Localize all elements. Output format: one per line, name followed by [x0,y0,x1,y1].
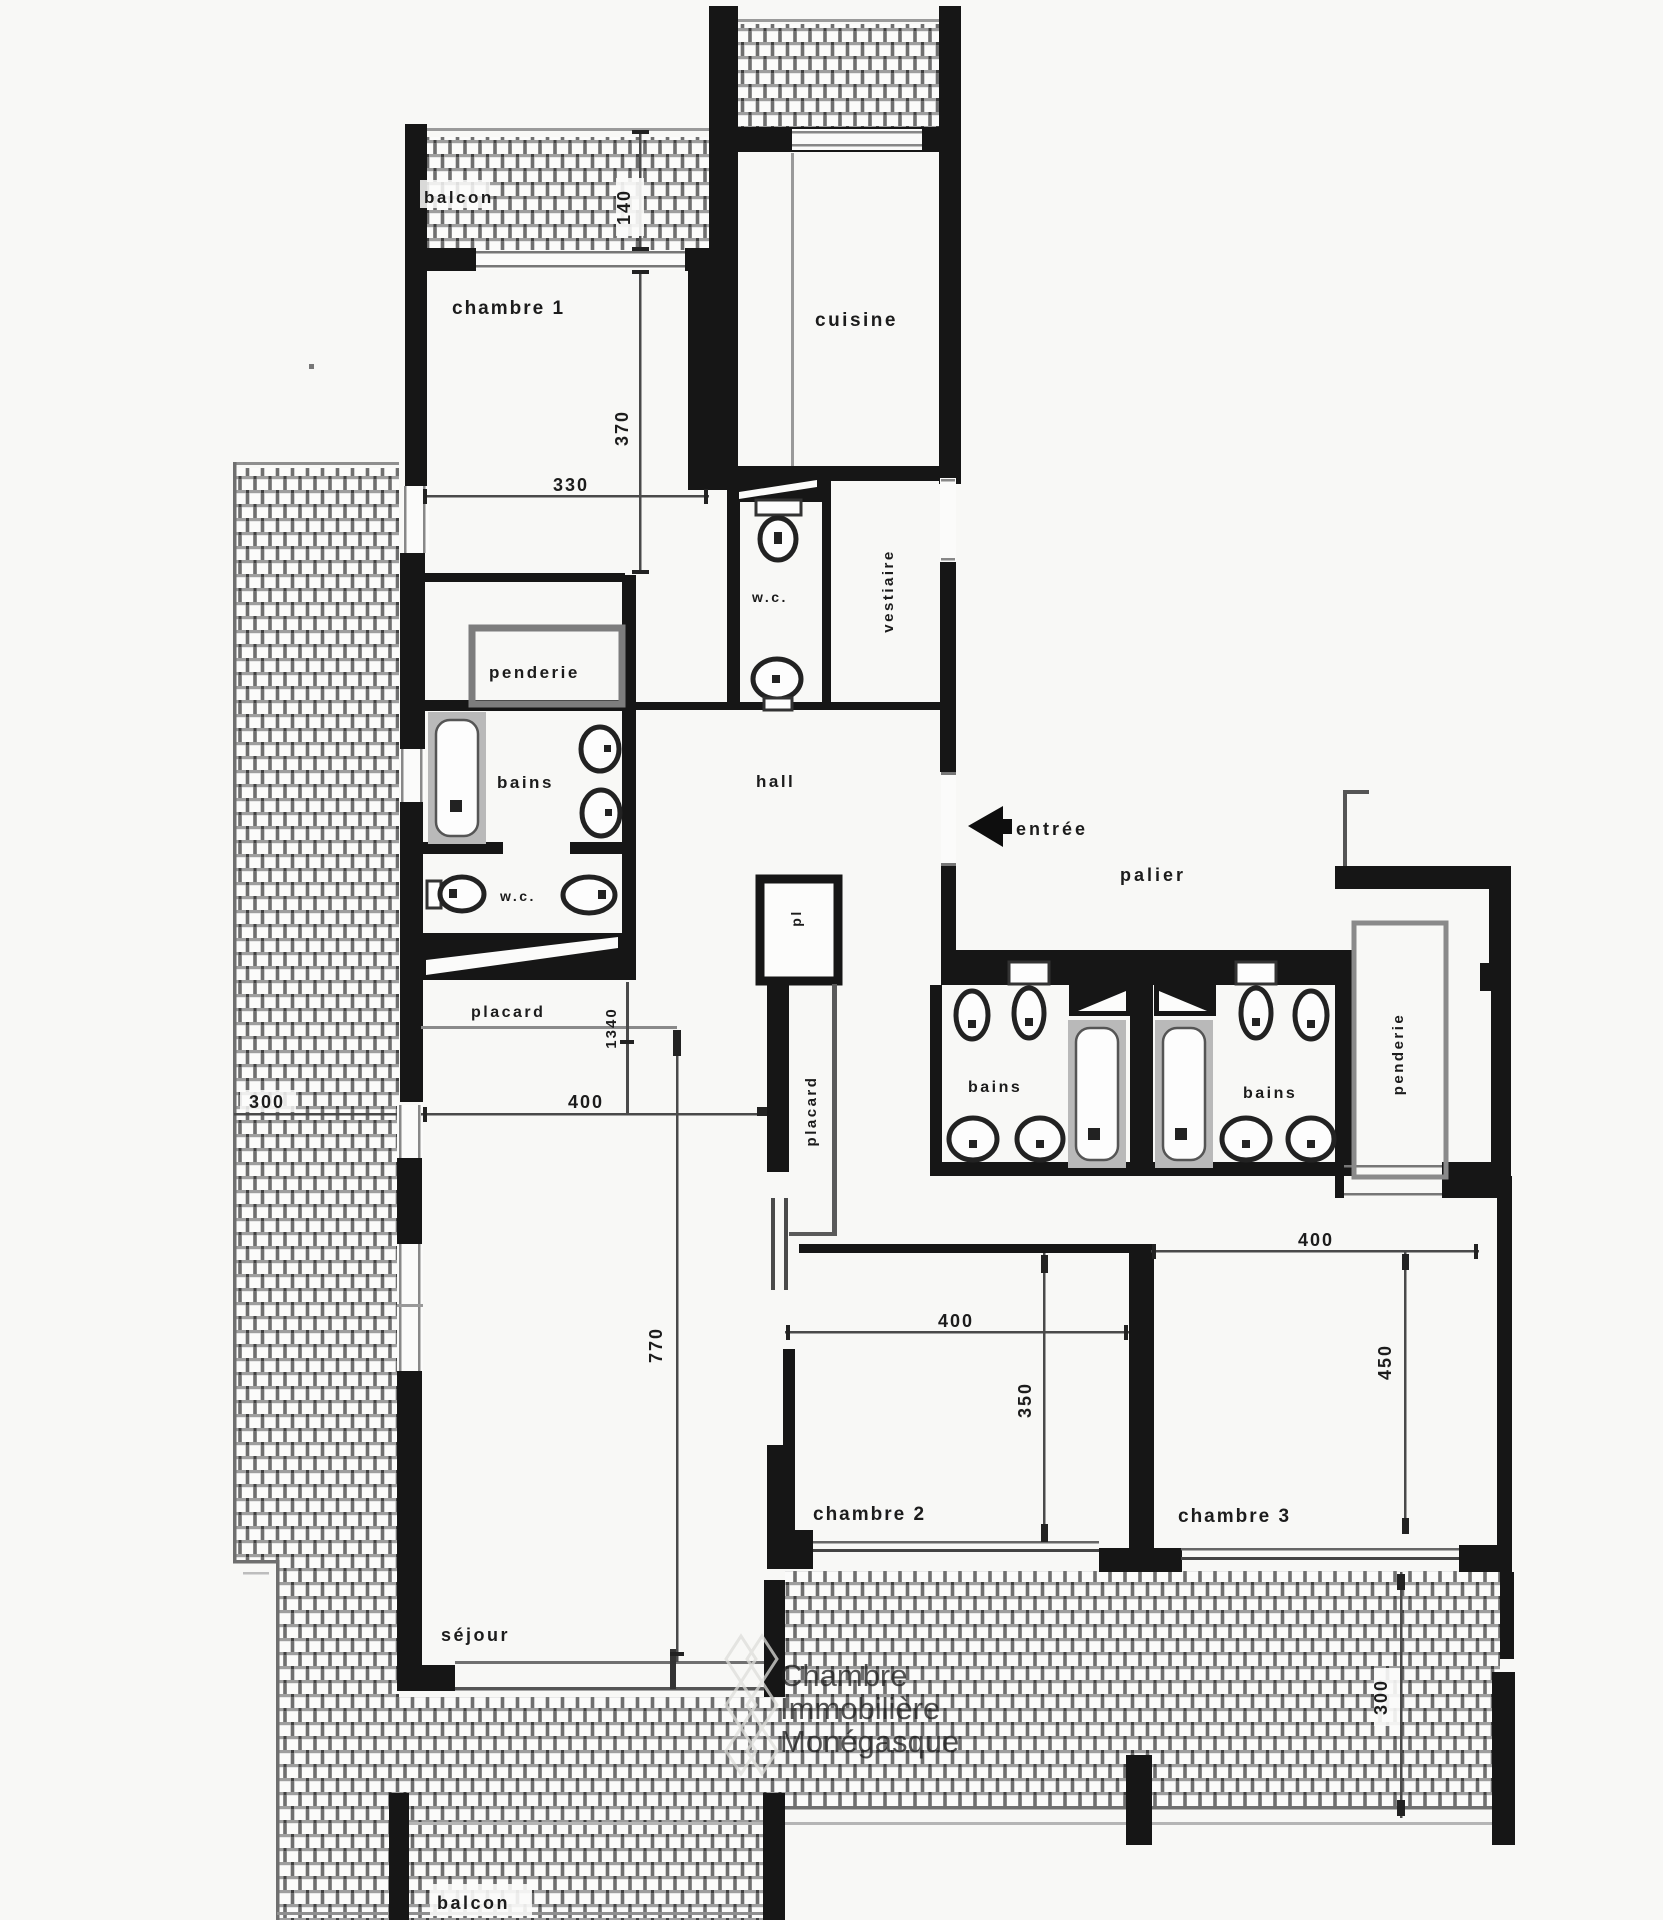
svg-text:bains: bains [968,1079,1022,1096]
svg-text:450: 450 [1375,1344,1395,1380]
svg-text:300: 300 [249,1092,285,1112]
svg-text:placard: placard [803,1076,820,1147]
svg-text:400: 400 [568,1092,604,1112]
svg-text:penderie: penderie [489,663,580,682]
svg-text:chambre 2: chambre 2 [813,1504,926,1525]
svg-text:pl: pl [788,909,804,926]
svg-text:370: 370 [612,410,632,446]
svg-text:cuisine: cuisine [815,310,898,331]
svg-text:penderie: penderie [1390,1013,1407,1096]
svg-text:w.c.: w.c. [751,589,788,605]
svg-text:chambre 1: chambre 1 [452,298,565,319]
svg-text:400: 400 [938,1311,974,1331]
svg-text:bains: bains [497,773,554,792]
svg-text:balcon: balcon [437,1893,510,1913]
svg-text:140: 140 [614,189,634,225]
svg-text:placard: placard [471,1004,545,1021]
svg-text:w.c.: w.c. [499,888,536,904]
svg-text:400: 400 [1298,1230,1334,1250]
svg-text:350: 350 [1015,1382,1035,1418]
svg-text:palier: palier [1120,865,1186,885]
svg-text:Immobilière: Immobilière [780,1691,940,1726]
svg-text:balcon: balcon [424,188,494,207]
svg-text:770: 770 [646,1327,666,1363]
svg-text:300: 300 [1371,1679,1391,1715]
svg-text:Monégasque: Monégasque [780,1724,959,1759]
svg-text:bains: bains [1243,1085,1297,1102]
svg-text:vestiaire: vestiaire [880,549,897,632]
svg-text:entrée: entrée [1016,819,1088,839]
svg-text:330: 330 [553,475,589,495]
svg-text:1340: 1340 [603,1007,620,1048]
svg-text:séjour: séjour [441,1625,510,1645]
svg-text:hall: hall [756,772,795,791]
svg-text:Chambre: Chambre [780,1658,908,1693]
svg-text:chambre 3: chambre 3 [1178,1506,1291,1527]
